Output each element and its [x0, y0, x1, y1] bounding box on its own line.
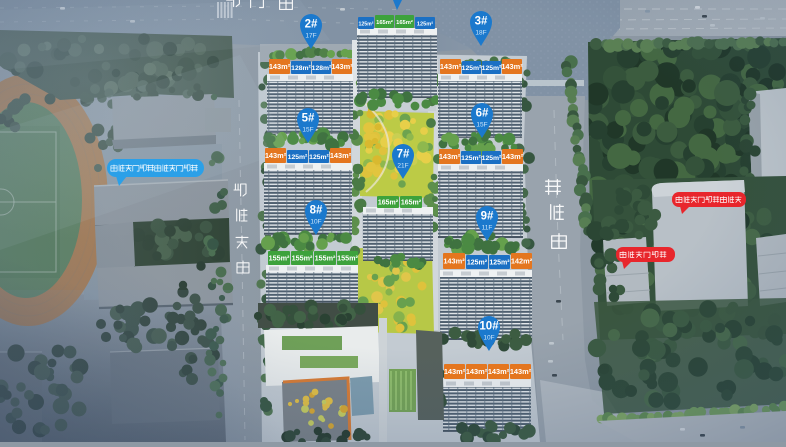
svg-text:10#: 10#	[479, 321, 499, 333]
svg-text:21F: 21F	[397, 163, 408, 170]
svg-text:143m²: 143m²	[444, 367, 466, 376]
svg-text:3#: 3#	[475, 16, 488, 28]
svg-text:143m²: 143m²	[265, 151, 287, 160]
svg-text:143m²: 143m²	[501, 62, 523, 71]
svg-text:11F: 11F	[482, 225, 493, 232]
svg-text:125m²: 125m²	[417, 20, 433, 27]
svg-text:155m²: 155m²	[315, 253, 336, 262]
svg-text:125m²: 125m²	[288, 154, 308, 161]
svg-text:125m²: 125m²	[482, 155, 502, 162]
svg-text:10F: 10F	[310, 219, 321, 226]
svg-text:155m²: 155m²	[269, 253, 290, 262]
svg-text:143m²: 143m²	[443, 256, 465, 265]
svg-text:128m²: 128m²	[291, 65, 311, 72]
svg-text:165m²: 165m²	[396, 19, 413, 26]
svg-text:165m²: 165m²	[378, 199, 399, 206]
svg-text:125m²: 125m²	[309, 154, 329, 161]
svg-text:2#: 2#	[305, 19, 318, 31]
svg-text:15F: 15F	[476, 122, 487, 129]
svg-text:143m²: 143m²	[439, 152, 461, 161]
svg-text:9#: 9#	[481, 211, 494, 223]
svg-text:143m²: 143m²	[510, 367, 532, 376]
svg-text:143m²: 143m²	[330, 151, 352, 160]
svg-text:143m²: 143m²	[269, 62, 291, 71]
svg-text:125m²: 125m²	[462, 65, 482, 72]
svg-text:10F: 10F	[483, 335, 494, 342]
svg-text:125m²: 125m²	[489, 259, 510, 266]
svg-text:8#: 8#	[310, 205, 323, 217]
svg-text:165m²: 165m²	[401, 199, 422, 206]
svg-text:125m²: 125m²	[467, 259, 488, 266]
svg-text:125m²: 125m²	[482, 65, 502, 72]
svg-text:128m²: 128m²	[312, 65, 332, 72]
svg-text:125m²: 125m²	[359, 21, 374, 27]
svg-text:5#: 5#	[302, 113, 315, 125]
svg-text:165m²: 165m²	[376, 19, 393, 26]
svg-text:143m²: 143m²	[502, 152, 524, 161]
svg-text:17F: 17F	[305, 33, 316, 40]
svg-text:143m²: 143m²	[331, 62, 353, 71]
svg-text:6#: 6#	[476, 108, 489, 120]
svg-text:142m²: 142m²	[511, 256, 533, 265]
svg-text:155m²: 155m²	[292, 253, 313, 262]
svg-text:155m²: 155m²	[337, 253, 358, 262]
svg-text:125m²: 125m²	[461, 155, 481, 162]
svg-text:143m²: 143m²	[466, 367, 488, 376]
svg-text:18F: 18F	[475, 30, 486, 37]
svg-text:143m²: 143m²	[440, 62, 462, 71]
svg-text:143m²: 143m²	[488, 367, 510, 376]
svg-text:7#: 7#	[397, 149, 410, 161]
svg-text:15F: 15F	[302, 127, 313, 134]
